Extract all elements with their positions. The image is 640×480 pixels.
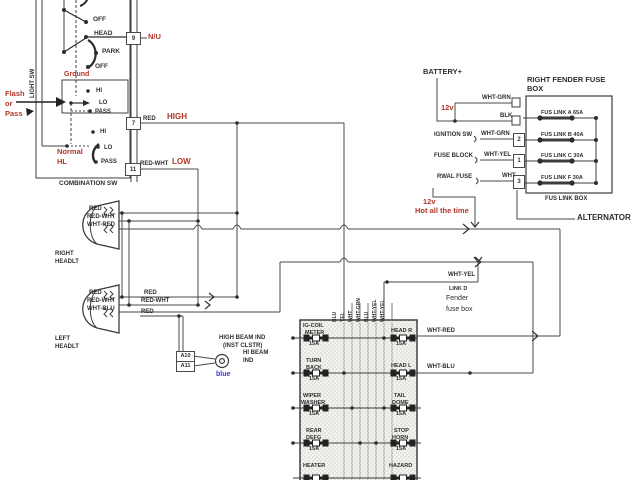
hot-12v: 12v: [423, 198, 436, 206]
rffb-wire-whtgrn1: WHT-GRN: [482, 95, 511, 101]
fuse-r4-b: HORN: [392, 436, 408, 442]
hbi-blue-label: blue: [216, 371, 230, 378]
col-label-1: BLU: [333, 312, 338, 322]
rffb-wire-blk: BLK: [500, 113, 512, 119]
rh-wire-whtred: WHT-RED: [87, 222, 115, 228]
fuse-l2-a: TURN: [306, 359, 321, 365]
fuse-r1-amp: 15A: [396, 342, 406, 348]
ffb-whtyel: WHT-YEL: [448, 272, 475, 278]
terminal-9: 9: [126, 32, 141, 45]
col-label-6: WHT-YEL: [373, 300, 378, 323]
col-label-4: WHT-GRN: [357, 298, 362, 322]
low-wire-label: RED-WHT: [140, 161, 168, 167]
rffb-title-1: RIGHT FENDER FUSE: [527, 76, 605, 84]
fuse-r4-a: STOP: [394, 429, 409, 435]
rh-wire-red: RED: [89, 206, 102, 212]
col-label-5: BLU: [365, 312, 370, 322]
lh-wire-red: RED: [89, 290, 102, 296]
normal-hl-2: HL: [57, 158, 67, 166]
nu-label: N/U: [148, 33, 161, 41]
fuse-l3-b: WASHER: [301, 401, 325, 407]
col-label-7: WHT-YEL: [381, 300, 386, 323]
pos-off1: OFF: [93, 17, 106, 24]
ffb-name-2: fuse box: [446, 306, 472, 313]
fus-link-c: FUS LINK C 30A: [541, 154, 583, 160]
battery-label: BATTERY+: [423, 68, 462, 76]
rffb-wire-whtyel: WHT-YEL: [484, 152, 511, 158]
rh-name-2: HEADLT: [55, 259, 79, 265]
col-label-3: WHT: [349, 311, 354, 322]
fuse-r5-a: HAZARD: [389, 464, 412, 470]
dim-lo-lo: LO: [104, 145, 112, 151]
fuse-l4-amp: 15A: [309, 447, 319, 453]
bulb-icon: [216, 355, 229, 368]
alternator-label: ALTERNATOR: [577, 214, 631, 222]
mid-wire-red2: RED: [141, 309, 154, 315]
combination-switch-contacts: [62, 0, 126, 164]
lh-name-1: LEFT: [55, 336, 70, 342]
combination-sw-title: COMBINATION SW: [59, 181, 117, 188]
low-label: LOW: [172, 158, 191, 166]
battery-12v: 12v: [441, 104, 454, 112]
flash-pass-arrow: [16, 97, 66, 116]
fuse-r4-amp: 15A: [396, 447, 406, 453]
fuse-r2-amp: 15A: [396, 377, 406, 383]
rffb-wire-whtgrn2: WHT-GRN: [481, 131, 510, 137]
fuse-l1-amp: 15A: [309, 342, 319, 348]
dim-up-lo: LO: [99, 100, 107, 106]
dim-lo-pass: PASS: [101, 159, 117, 165]
dim-up-pass: PASS: [95, 109, 111, 115]
ground-label: Ground: [64, 71, 89, 78]
fus-link-box-caption: FUS LINK BOX: [545, 196, 587, 202]
pos-off2: OFF: [95, 64, 108, 71]
flash-label-3: Pass: [5, 110, 23, 118]
rffb-title-2: BOX: [527, 85, 543, 93]
src-ignition-sw: IGNITION SW: [434, 132, 472, 138]
lh-wire-redwht: RED-WHT: [87, 298, 115, 304]
hbi-title-2: (INST CLSTR): [223, 343, 262, 349]
mid-wire-redwht: RED-WHT: [141, 298, 169, 304]
fus-link-b: FUS LINK B 40A: [541, 133, 583, 139]
high-wire-label: RED: [143, 116, 156, 122]
high-label: HIGH: [167, 113, 187, 121]
ffb-whtred: WHT-RED: [427, 328, 455, 334]
src-fuse-block: FUSE BLOCK: [434, 153, 473, 159]
normal-hl-1: Normal: [57, 148, 83, 156]
fus-link-a: FUS LINK A 65A: [541, 111, 583, 117]
fuse-l3-amp: 15A: [309, 412, 319, 418]
ffb-whtblu: WHT-BLU: [427, 364, 455, 370]
pos-head: HEAD: [94, 31, 112, 38]
rffb-wire-wht: WHT: [502, 173, 516, 179]
fuse-l4-a: REAR: [306, 429, 322, 435]
hbi-ind-1: HI BEAM: [243, 350, 268, 356]
col-label-2: YEL: [341, 312, 346, 322]
fuse-r1-a: HEAD R: [391, 329, 412, 335]
diagram-lines: [0, 0, 640, 480]
fuse-l5-a: HEATER: [303, 464, 325, 470]
light-sw-label: LIGHT SW: [30, 69, 36, 98]
flash-label-2: or: [5, 100, 13, 108]
fuse-l4-b: DEFG: [306, 436, 321, 442]
src-rwal-fuse: RWAL FUSE: [437, 174, 472, 180]
wiring-diagram: 9 7 11 2 1 3 A10 A11 LIGHT SW OFF HEAD P…: [0, 0, 640, 480]
dim-lo-hi: HI: [100, 129, 106, 135]
rh-name-1: RIGHT: [55, 251, 74, 257]
lh-name-2: HEADLT: [55, 344, 79, 350]
fus-link-f: FUS LINK F 30A: [541, 176, 583, 182]
dim-up-hi: HI: [96, 88, 102, 94]
fuse-l2-b: BACK: [306, 366, 322, 372]
ffb-link-d: LINK D: [449, 287, 467, 293]
hbi-ind-2: IND: [243, 358, 253, 364]
terminal-7: 7: [126, 117, 141, 130]
fuse-r3-amp: 15A: [396, 412, 406, 418]
hot-all-the-time: Hot all the time: [415, 207, 469, 215]
fuse-l3-a: WIPER: [303, 394, 321, 400]
pos-park: PARK: [102, 49, 120, 56]
terminal-a11: A11: [176, 361, 195, 372]
terminal-1: 1: [513, 154, 525, 168]
fuse-r3-b: DOME: [392, 401, 409, 407]
fuse-r2-a: HEAD L: [391, 364, 411, 370]
ffb-name-1: Fender: [446, 295, 468, 302]
fuse-l2-amp: 15A: [309, 377, 319, 383]
lh-wire-whtblu: WHT-BLU: [87, 306, 115, 312]
rh-wire-redwht: RED-WHT: [87, 214, 115, 220]
fuse-r3-a: TAIL: [394, 394, 406, 400]
terminal-2: 2: [513, 133, 525, 147]
terminal-11: 11: [125, 163, 141, 176]
flash-label-1: Flash: [5, 90, 25, 98]
fuse-l1-b: METER: [305, 331, 324, 337]
mid-wire-red: RED: [144, 290, 157, 296]
hbi-title-1: HIGH BEAM IND: [219, 335, 265, 341]
fuse-l1-a: IG-COIL: [303, 324, 324, 330]
